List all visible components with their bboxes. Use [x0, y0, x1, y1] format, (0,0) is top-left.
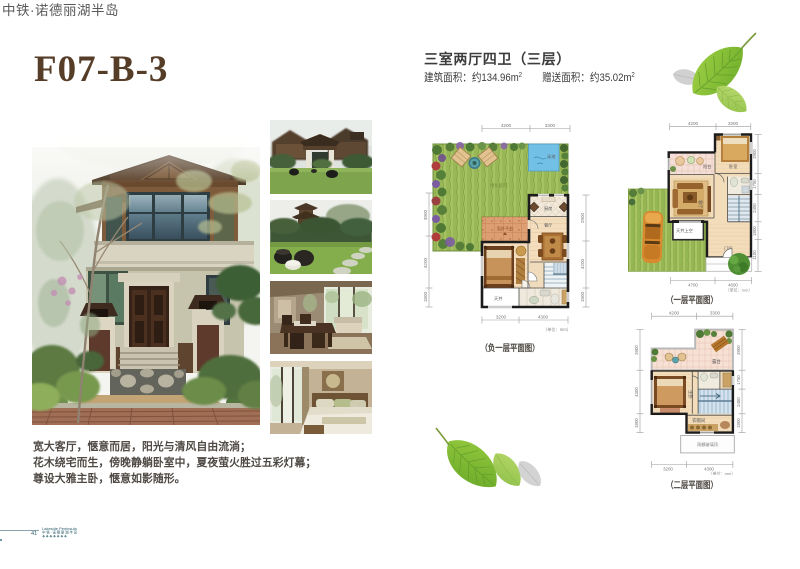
- svg-text:1800: 1800: [752, 226, 757, 236]
- svg-text:1800: 1800: [736, 418, 741, 428]
- svg-text:（单位：mm）: （单位：mm）: [726, 287, 753, 293]
- svg-text:主卧: 主卧: [687, 390, 694, 399]
- svg-text:雨棚玻璃顶: 雨棚玻璃顶: [697, 441, 719, 448]
- svg-text:餐厅: 餐厅: [544, 222, 552, 229]
- svg-text:1800: 1800: [634, 418, 639, 428]
- svg-text:天井上空: 天井上空: [676, 227, 693, 234]
- svg-text:3900: 3900: [423, 209, 428, 220]
- svg-text:4300: 4300: [538, 315, 549, 320]
- svg-text:4200: 4200: [688, 121, 699, 126]
- svg-text:（单位：mm）: （单位：mm）: [709, 470, 736, 475]
- svg-text:3200: 3200: [496, 315, 507, 320]
- svg-text:3200: 3200: [663, 467, 673, 472]
- svg-text:1100: 1100: [752, 250, 757, 260]
- svg-text:泳池: 泳池: [547, 153, 556, 160]
- svg-text:1800: 1800: [580, 291, 585, 302]
- svg-text:1800: 1800: [423, 291, 428, 302]
- svg-text:4700: 4700: [688, 283, 698, 288]
- svg-text:4200: 4200: [580, 258, 585, 269]
- svg-text:3300: 3300: [545, 123, 556, 128]
- svg-text:厨房: 厨房: [544, 205, 552, 212]
- svg-text:4200: 4200: [669, 311, 680, 316]
- svg-text:室外平台: 室外平台: [497, 225, 514, 232]
- svg-text:3300: 3300: [710, 311, 721, 316]
- svg-text:4200: 4200: [423, 257, 428, 268]
- svg-text:3900: 3900: [752, 149, 757, 159]
- svg-text:2450: 2450: [752, 203, 757, 213]
- svg-text:2900: 2900: [580, 212, 585, 223]
- svg-text:客厅: 客厅: [697, 200, 704, 208]
- svg-text:3300: 3300: [728, 121, 739, 126]
- svg-text:4200: 4200: [501, 123, 512, 128]
- svg-text:（单位：mm）: （单位：mm）: [543, 326, 571, 333]
- svg-text:露台: 露台: [712, 358, 721, 365]
- svg-text:1750: 1750: [736, 375, 741, 385]
- svg-text:3900: 3900: [634, 345, 639, 355]
- svg-text:1750: 1750: [752, 179, 757, 189]
- svg-text:2450: 2450: [736, 397, 741, 407]
- svg-text:绿化庭院: 绿化庭院: [490, 182, 508, 189]
- svg-text:3900: 3900: [736, 345, 741, 355]
- svg-text:4300: 4300: [634, 387, 639, 397]
- svg-text:卧室: 卧室: [729, 163, 737, 170]
- svg-text:天井: 天井: [494, 295, 502, 302]
- svg-text:阳台: 阳台: [703, 163, 711, 170]
- svg-text:衣帽间: 衣帽间: [692, 417, 705, 424]
